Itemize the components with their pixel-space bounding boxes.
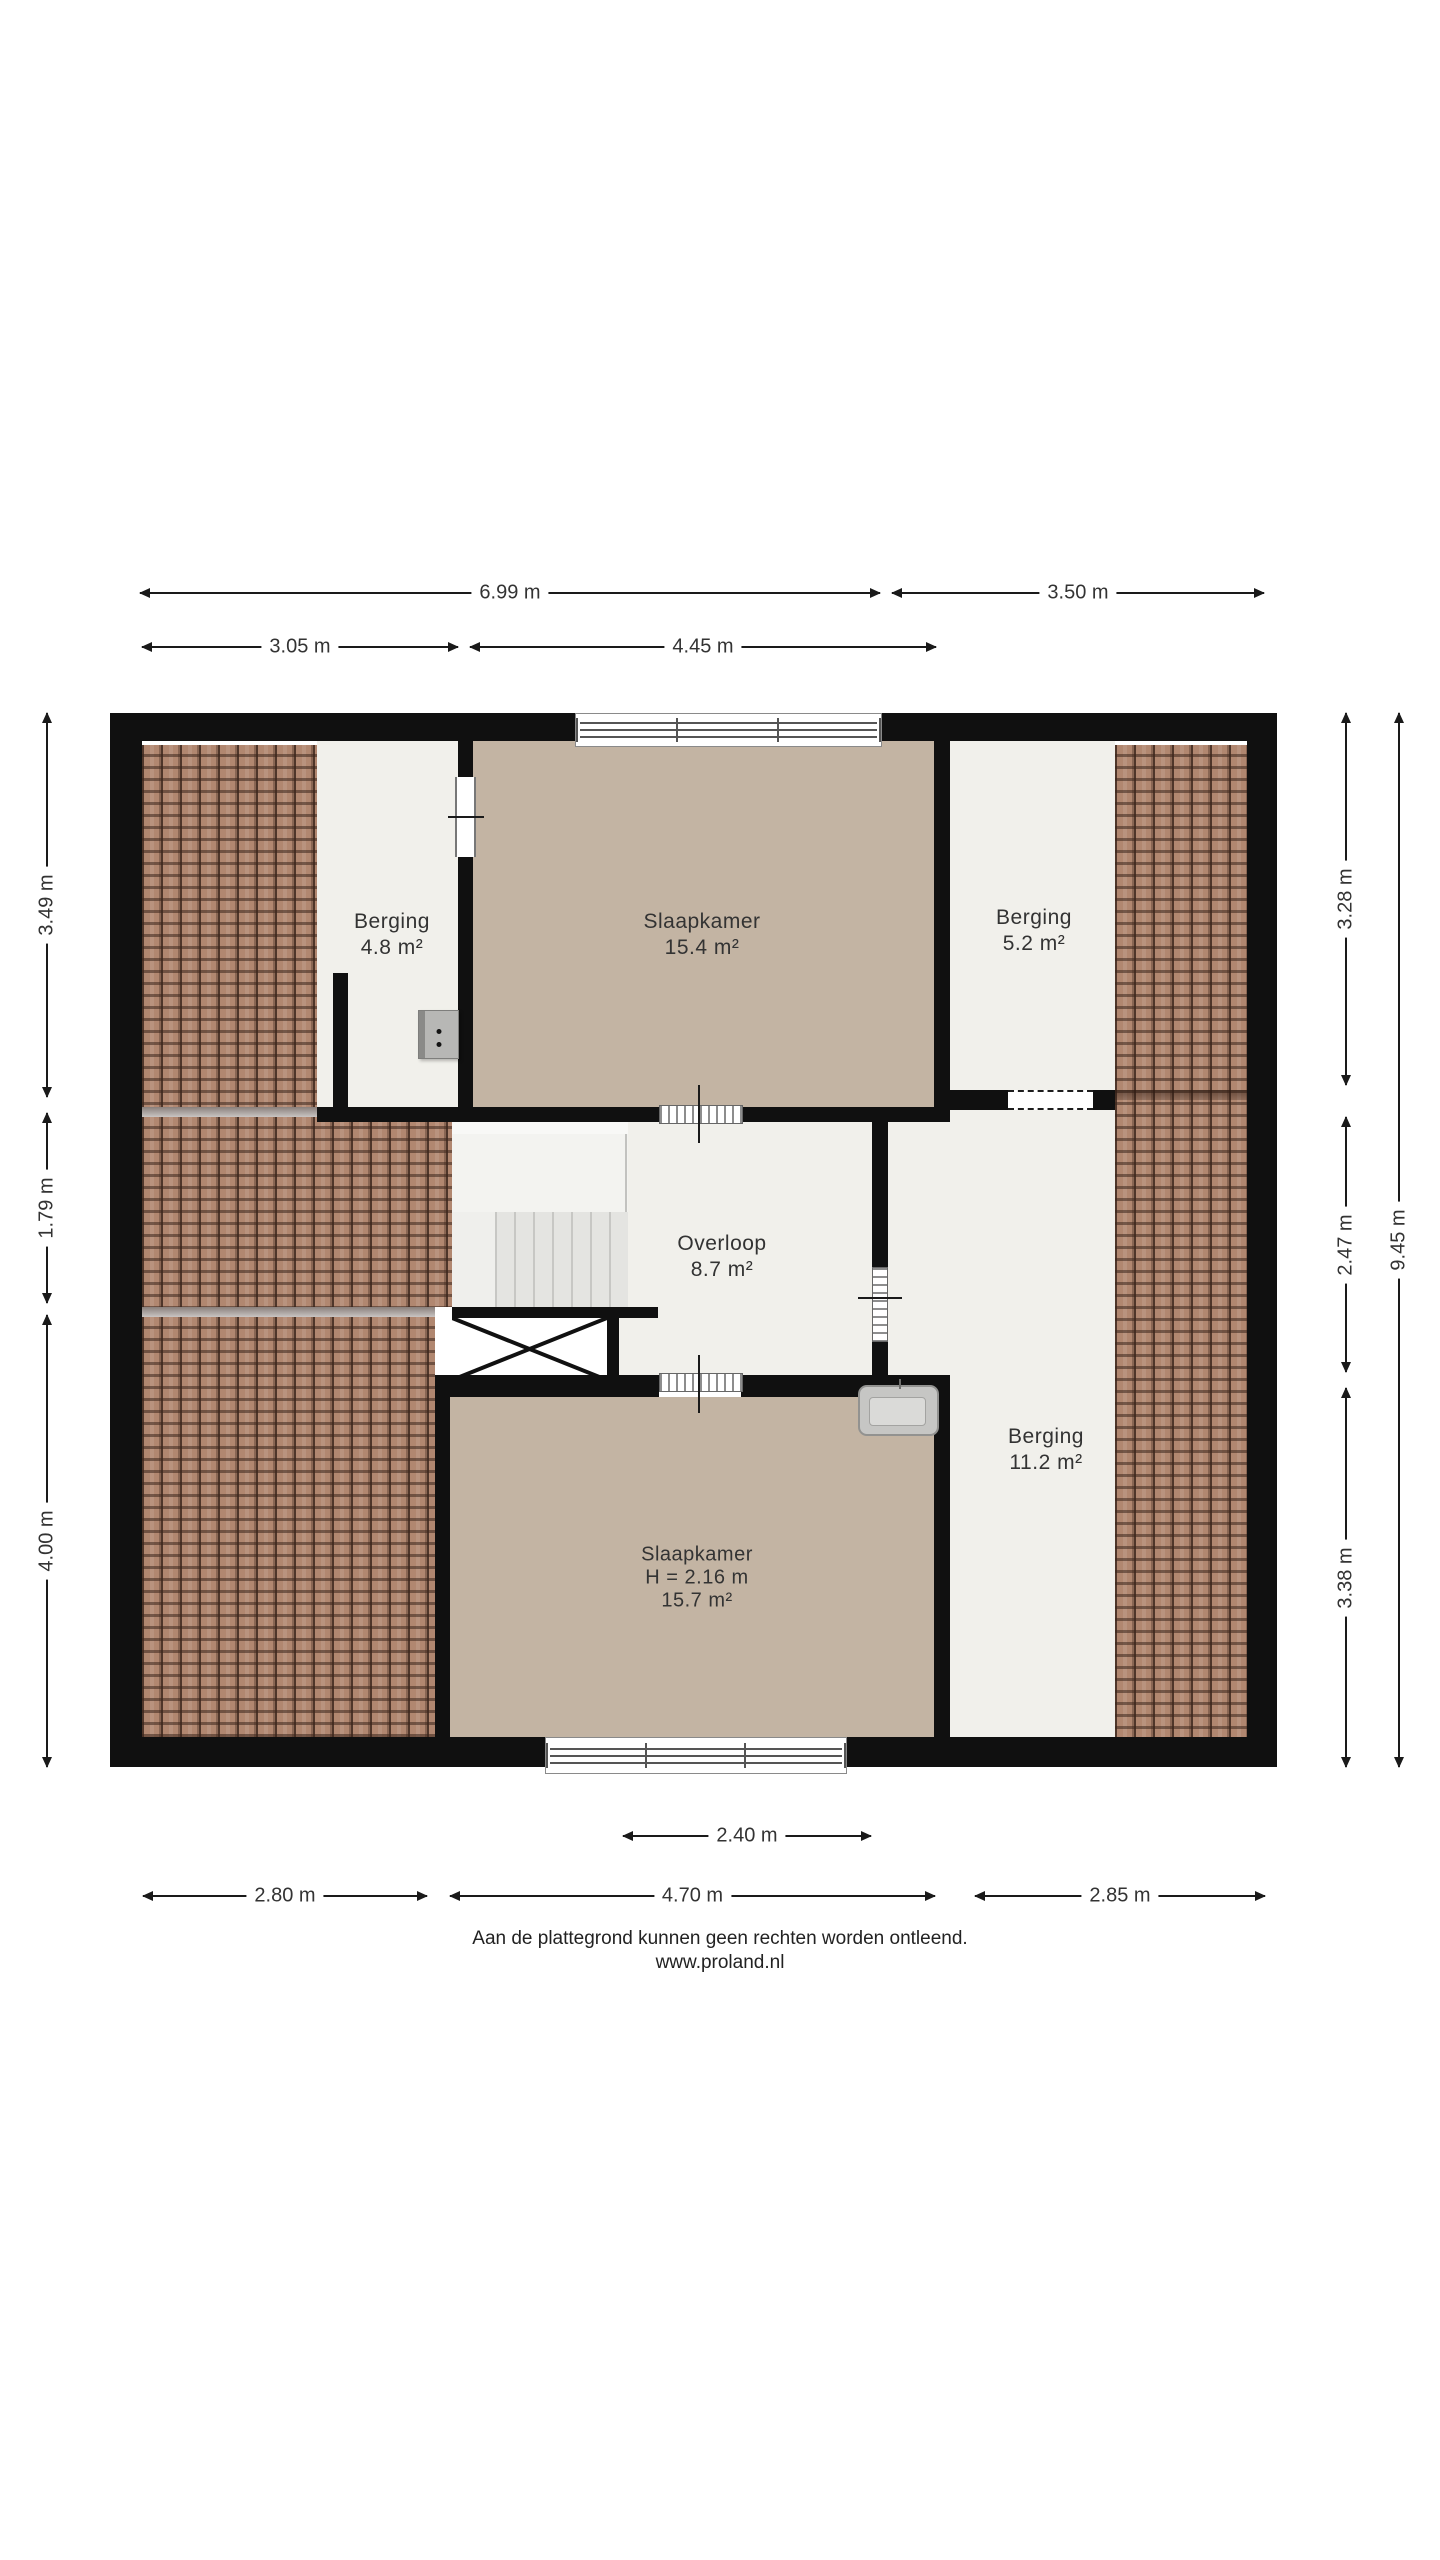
- boiler-icon: [418, 1010, 459, 1059]
- stair-treads: [495, 1212, 628, 1307]
- room-area: 15.7 m²: [641, 1590, 753, 1613]
- wall-outer-right: [1247, 713, 1277, 1767]
- dim-9-45: 9.45 m: [1389, 713, 1409, 1767]
- wall-overloop-right-upper: [872, 1122, 888, 1267]
- room-name: Overloop: [677, 1231, 766, 1257]
- window-tick: [448, 816, 484, 818]
- room-area: 5.2 m²: [996, 931, 1072, 957]
- dim-1-79: 1.79 m: [37, 1113, 57, 1303]
- label-overloop: Overloop 8.7 m²: [677, 1231, 766, 1283]
- room-area: 11.2 m²: [1008, 1450, 1084, 1476]
- dim-4-70: 4.70 m: [450, 1886, 935, 1906]
- wall-divider-right: [741, 1107, 950, 1122]
- roof-tiles-right: [1115, 745, 1247, 1737]
- dim-2-80: 2.80 m: [143, 1886, 427, 1906]
- wall-berging48-right-lower: [458, 857, 473, 1107]
- wall-divider-left: [317, 1107, 659, 1122]
- wall-berging52-bottom-left: [934, 1090, 1008, 1110]
- dim-2-47: 2.47 m: [1336, 1117, 1356, 1372]
- label-berging-5-2: Berging 5.2 m²: [996, 905, 1072, 957]
- floorplan-page: Berging 4.8 m² Slaapkamer 15.4 m² Bergin…: [0, 0, 1440, 2560]
- dim-2-85: 2.85 m: [975, 1886, 1265, 1906]
- door-tick: [858, 1297, 902, 1299]
- wall-slaapkamer154-right: [934, 741, 950, 1090]
- room-berging-11-2-upper: [888, 1110, 1115, 1375]
- void-opening: [452, 1318, 607, 1380]
- roof-tiles-left-lower: [142, 1317, 435, 1737]
- dormer-window-top-icon: [575, 713, 882, 747]
- wall-slaapkamer157-left: [435, 1397, 450, 1737]
- roof-tiles-left-upper: [142, 745, 317, 1107]
- dim-4-45: 4.45 m: [470, 637, 936, 657]
- door-overloop-top: [659, 1105, 743, 1124]
- room-area: 15.4 m²: [643, 935, 760, 961]
- dormer-window-bottom-icon: [545, 1737, 847, 1774]
- door-slaapkamer157: [659, 1373, 743, 1392]
- wall-void-top: [452, 1307, 658, 1318]
- dim-3-49: 3.49 m: [37, 713, 57, 1097]
- door-tick: [698, 1085, 700, 1143]
- room-name: Slaapkamer: [643, 909, 760, 935]
- roof-ridge-seam: [1115, 1090, 1247, 1100]
- label-berging-4-8: Berging 4.8 m²: [354, 909, 430, 961]
- room-name: Berging: [996, 905, 1072, 931]
- room-name: Berging: [354, 909, 430, 935]
- wall-slaapkamer157-top-left: [435, 1375, 659, 1397]
- dim-3-38: 3.38 m: [1336, 1388, 1356, 1767]
- roof-ridge-seam: [142, 1307, 435, 1317]
- dim-3-50: 3.50 m: [892, 583, 1264, 603]
- wall-outer-left: [110, 713, 142, 1767]
- sink-icon: [858, 1385, 939, 1436]
- dim-3-05: 3.05 m: [142, 637, 458, 657]
- dim-3-28: 3.28 m: [1336, 713, 1356, 1085]
- wall-berging48-right-upper: [458, 741, 473, 777]
- door-overloop-right: [872, 1267, 888, 1342]
- staircase: [452, 1122, 628, 1307]
- room-name: Berging: [1008, 1424, 1084, 1450]
- room-height: H = 2.16 m: [641, 1567, 753, 1590]
- door-tick: [698, 1355, 700, 1413]
- room-area: 4.8 m²: [354, 935, 430, 961]
- footer-disclaimer: Aan de plattegrond kunnen geen rechten w…: [0, 1928, 1440, 1950]
- dim-4-00: 4.00 m: [37, 1315, 57, 1767]
- footer-website: www.proland.nl: [0, 1952, 1440, 1974]
- label-berging-11-2: Berging 11.2 m²: [1008, 1424, 1084, 1476]
- room-area: 8.7 m²: [677, 1257, 766, 1283]
- dim-6-99: 6.99 m: [140, 583, 880, 603]
- dim-2-40: 2.40 m: [623, 1826, 871, 1846]
- label-slaapkamer-15-4: Slaapkamer 15.4 m²: [643, 909, 760, 961]
- stair-rail: [625, 1134, 627, 1212]
- wall-void-right: [607, 1318, 619, 1380]
- stair-landing: [452, 1122, 628, 1212]
- door-berging52: [1008, 1090, 1093, 1110]
- wall-berging48-stub: [333, 973, 348, 1107]
- label-slaapkamer-15-7: Slaapkamer H = 2.16 m 15.7 m²: [641, 1544, 753, 1613]
- room-name: Slaapkamer: [641, 1544, 753, 1567]
- wall-berging52-bottom-right: [1093, 1090, 1115, 1110]
- roof-tiles-left-middle: [142, 1117, 452, 1307]
